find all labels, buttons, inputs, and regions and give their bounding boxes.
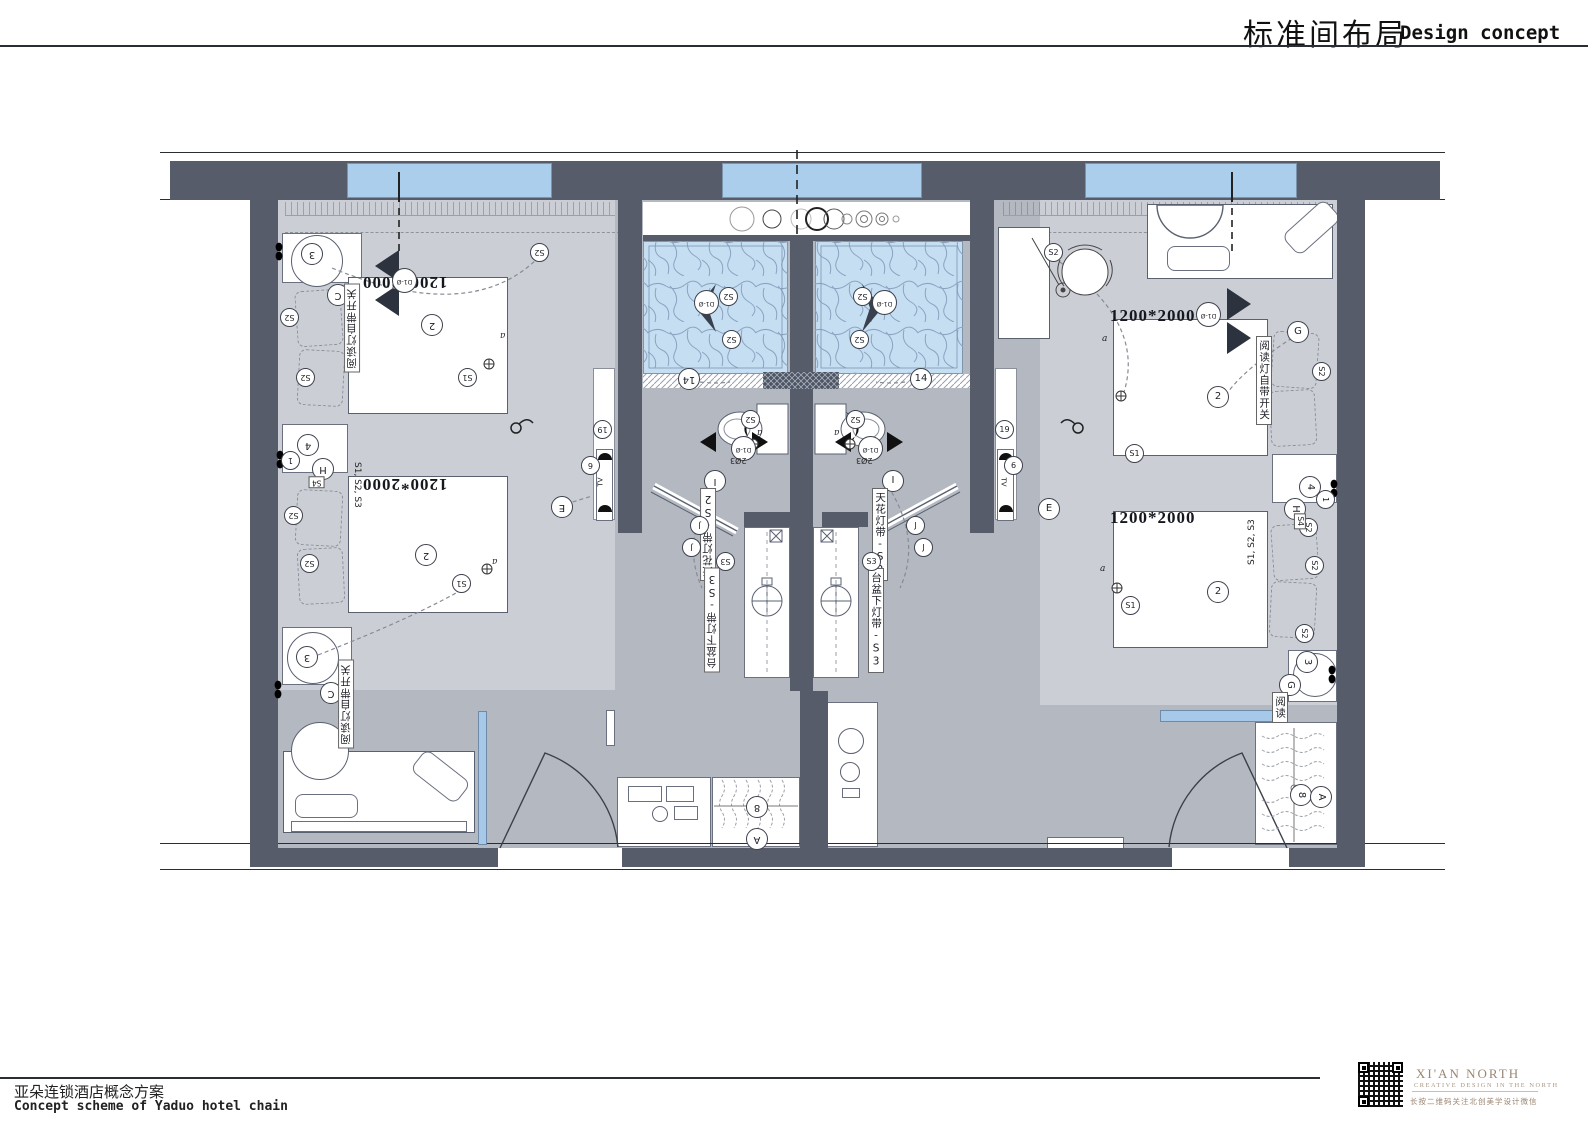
vanity-circle-row <box>730 207 899 231</box>
switch-tag: S2 <box>1295 624 1314 643</box>
switch-tag: S2 <box>1312 362 1331 381</box>
switch-tag: S2 <box>300 554 319 573</box>
bed-size-label: 1200*2000 <box>1110 306 1196 326</box>
circled-label: G <box>1287 321 1309 343</box>
circled-label: 6 <box>1004 456 1023 475</box>
switch-tag: S2 <box>850 330 869 349</box>
switch-letter: a <box>500 330 505 340</box>
circled-label: 1 <box>1316 490 1335 509</box>
switch-symbol <box>482 359 1126 593</box>
basin-strip-note: 台盆下灯带-S3 <box>868 568 884 673</box>
qr-finder <box>1358 1062 1369 1073</box>
switch-tag: S2 <box>722 330 741 349</box>
circled-label: 19 <box>593 420 612 439</box>
switch-letter: a <box>492 556 497 566</box>
boxed-tag: S4 <box>309 476 325 488</box>
reading-lamp-note: 阅读灯自带开关 <box>344 284 360 373</box>
circled-label: E <box>551 496 573 518</box>
switch-tag: S2 <box>284 506 303 525</box>
switch-tag: S1 <box>452 574 471 593</box>
circled-label: A <box>746 828 768 850</box>
switch-tag: S2 <box>1044 243 1063 262</box>
switch-tag: S2 <box>280 308 299 327</box>
reading-lamp-note: 阅读灯自带开关 <box>338 660 354 749</box>
circled-label: 14 <box>910 368 932 390</box>
sheet-title-en: Design concept <box>1400 22 1560 44</box>
circled-label: 14 <box>678 368 700 390</box>
reading-short-note: 阅读 <box>1272 692 1288 723</box>
toilet-mark: 2Ø3 <box>730 456 746 465</box>
circled-label: E <box>1038 498 1060 520</box>
switch-tag: S2 <box>296 368 315 387</box>
boxed-tag: S4 <box>1294 513 1306 529</box>
tv-speaker <box>598 453 1013 512</box>
sheet-title-cn: 标准间布局 <box>1243 10 1408 54</box>
qr-finder <box>1392 1062 1403 1073</box>
basin-left <box>752 532 782 672</box>
switch-tag: S1 <box>1121 596 1140 615</box>
switch-letter: a <box>1100 564 1105 574</box>
circled-label: 3 <box>1296 651 1318 673</box>
circled-label: 2 <box>1207 581 1229 603</box>
brand-divider <box>1412 1091 1538 1092</box>
switch-tag: S3 <box>716 552 735 571</box>
entry-door-right <box>1169 753 1287 848</box>
switch-tag: S2 <box>1305 556 1324 575</box>
switch-tag: S2 <box>853 287 872 306</box>
door-mark-label: D1-Ø <box>872 290 897 315</box>
studio-wechat-note: 长按二维码关注北创美学设计微信 <box>1410 1096 1538 1107</box>
switch-group-label: S1, S2, S3 <box>1247 519 1257 565</box>
switch-tag: S2 <box>846 410 865 429</box>
circled-label: J <box>906 516 925 535</box>
bed-size-label: 1200*2000 <box>1110 508 1196 528</box>
switch-group-label: S1, S2, S3 <box>352 462 362 508</box>
door-mark-label: D1-Ø <box>694 290 719 315</box>
basin-strip-note: 台盆下灯带-S3 <box>704 568 720 673</box>
qr-finder <box>1358 1096 1369 1107</box>
switch-tag: S1 <box>1125 444 1144 463</box>
title-rule <box>0 45 1588 47</box>
desk-chair-right <box>1058 245 1113 295</box>
floor-drain <box>770 530 833 542</box>
circled-label: 3 <box>296 646 318 668</box>
switch-tag: S2 <box>719 287 738 306</box>
switch-letter: a <box>834 427 839 437</box>
footer-rule <box>0 1077 1320 1079</box>
circled-label: 8 <box>746 796 768 818</box>
circled-label: J <box>682 538 701 557</box>
circled-label: 3 <box>301 243 323 265</box>
switch-tag: S3 <box>862 552 881 571</box>
tv-label: TV <box>597 477 605 486</box>
basin-right <box>821 532 851 672</box>
circled-label: 8 <box>1290 784 1312 806</box>
project-title-en: Concept scheme of Yaduo hotel chain <box>14 1099 288 1114</box>
door-mark-label: D1-Ø <box>392 268 417 293</box>
circled-label: 4 <box>297 434 319 456</box>
circled-label: A <box>1310 786 1332 808</box>
switch-tag: S2 <box>530 243 549 262</box>
entry-door-left <box>500 753 618 848</box>
switch-letter: a <box>757 427 762 437</box>
toilet-mark: 2Ø3 <box>856 456 872 465</box>
studio-name: XI'AN NORTH <box>1416 1066 1520 1082</box>
desk-mirror-notch <box>1157 205 1223 238</box>
d1-marker-right <box>1227 288 1251 354</box>
plan-detail-layer <box>0 0 1588 1123</box>
studio-tagline: CREATIVE DESIGN IN THE NORTH <box>1414 1082 1559 1089</box>
circled-label: J <box>690 516 709 535</box>
circled-label: 2 <box>421 314 443 336</box>
circled-label: 19 <box>995 420 1014 439</box>
floor-plan-sheet: 1200*2000 1200*2000 2 2 S1 S1 a a S2 S2 … <box>0 0 1588 1123</box>
tv-label: TV <box>1000 477 1008 486</box>
bed-size-label: 1200*2000 <box>362 474 448 494</box>
circled-label: 2 <box>1207 386 1229 408</box>
wechat-qr-code <box>1358 1062 1403 1107</box>
door-mark-label: D1-Ø <box>1196 302 1221 327</box>
circled-label: J <box>914 538 933 557</box>
switch-tag: S1 <box>458 368 477 387</box>
reading-lamp-note: 阅读灯自带开关 <box>1256 336 1272 425</box>
switch-letter: a <box>1102 334 1107 344</box>
section-marks <box>399 150 1232 252</box>
circled-label: 1 <box>281 451 300 470</box>
circled-label: 6 <box>581 456 600 475</box>
circled-label: 2 <box>415 544 437 566</box>
